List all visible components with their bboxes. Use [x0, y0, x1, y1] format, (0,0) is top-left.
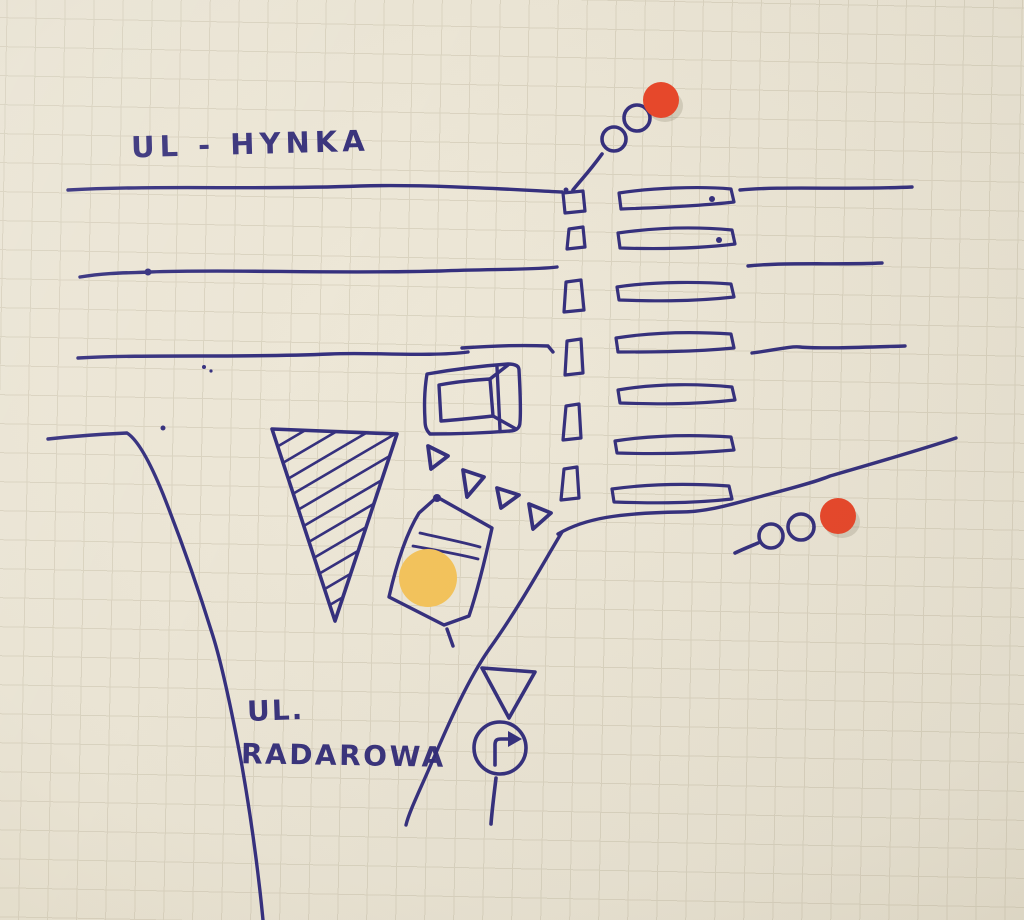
traffic-light-pole	[735, 543, 758, 553]
red-signal-dot-top	[643, 82, 679, 118]
lane-dash	[567, 227, 585, 249]
yield-sign	[482, 668, 535, 718]
lane-dash	[564, 280, 584, 312]
traffic-light-pole	[573, 154, 602, 190]
zebra-bar	[618, 385, 735, 404]
zebra-bar	[612, 484, 732, 502]
traffic-light-lamp	[759, 524, 783, 548]
ink-dot	[709, 196, 715, 202]
graph-paper-page: UL - HYNKA UL. RADAROWA	[0, 0, 1024, 920]
street-label-radarowa-ul: UL.	[246, 693, 304, 728]
street-label-radarowa: RADAROWA	[241, 737, 446, 774]
lane-line	[740, 187, 912, 190]
ink-dot	[209, 369, 212, 372]
lane-divider-dashes	[561, 191, 585, 500]
ink-dot	[202, 365, 206, 369]
lane-line	[80, 267, 557, 277]
sign-circle	[474, 722, 526, 774]
traffic-light-lamp	[788, 514, 814, 540]
lane-line	[462, 346, 553, 352]
right-turn-sign	[474, 722, 526, 824]
ink-dot	[564, 188, 569, 193]
lane-dash	[565, 339, 583, 375]
car-windshield	[420, 533, 480, 547]
zebra-bar	[616, 333, 734, 352]
street-hynka-east-lines	[740, 187, 912, 353]
zebra-bar	[619, 188, 734, 209]
lane-line	[752, 346, 905, 353]
traffic-light-top	[573, 105, 650, 190]
zebra-bar	[617, 282, 734, 300]
ink-dot	[716, 237, 722, 243]
lane-line	[78, 352, 468, 358]
traffic-light-right	[735, 514, 814, 553]
traffic-light-lamp	[602, 127, 626, 151]
ink-dot	[145, 269, 152, 276]
sign-post	[491, 778, 496, 824]
chevron	[529, 504, 551, 529]
ink-layer	[48, 105, 956, 920]
street-label-hynka: UL - HYNKA	[131, 124, 371, 165]
yellow-marker-dot	[399, 549, 457, 607]
zebra-bar	[615, 436, 734, 454]
lane-line	[748, 263, 882, 266]
lane-line	[68, 186, 562, 192]
red-signal-dot-right	[820, 498, 856, 534]
chevron	[497, 488, 519, 508]
lane-dash	[561, 467, 579, 500]
chevron	[428, 446, 448, 469]
zebra-crossing	[612, 188, 735, 503]
chevron	[463, 470, 484, 497]
car-top	[425, 364, 521, 434]
ink-dot	[161, 426, 166, 431]
lane-dash	[563, 191, 585, 213]
lane-dash	[563, 404, 581, 440]
turn-arrow-stem	[495, 739, 510, 765]
ink-dot	[433, 494, 441, 502]
street-hynka-west-lines	[68, 186, 562, 358]
marker-dots	[399, 82, 860, 607]
turn-path-chevrons	[428, 446, 551, 529]
road-edge-left	[48, 433, 263, 920]
car-roof	[439, 379, 493, 421]
yield-triangle	[482, 668, 535, 718]
